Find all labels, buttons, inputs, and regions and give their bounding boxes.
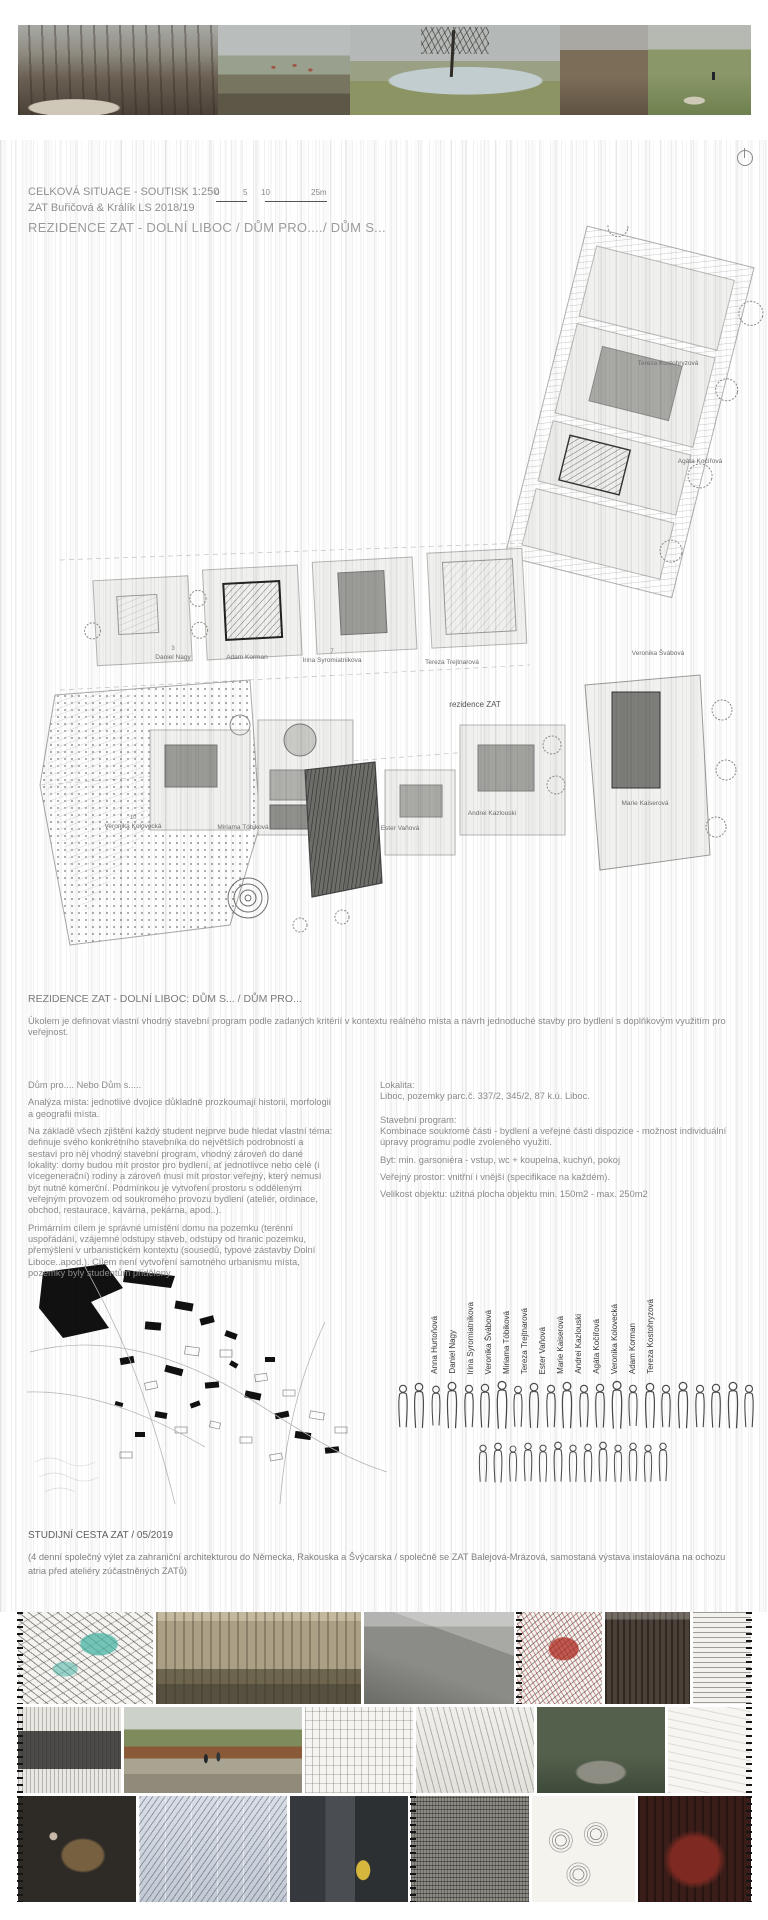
walking-person [712, 72, 715, 80]
project-title: REZIDENCE ZAT - DOLNÍ LIBOC / DŮM PRO...… [28, 220, 386, 235]
scale-bar-segment-1 [216, 201, 247, 202]
student-name-list: Anna Hurtoňová Daniel Nagy Irina Syromia… [430, 1262, 664, 1374]
scale-tick-10: 10 [261, 188, 270, 197]
collage-row-2 [18, 1707, 751, 1793]
student-name: Tereza Trejtnarová [520, 1308, 530, 1374]
assignment-intro: Úkolem je definovat vlastní vhodný stave… [28, 1016, 734, 1039]
assignment-title: REZIDENCE ZAT - DOLNÍ LIBOC: DŮM S... / … [28, 993, 302, 1005]
sketch-three-circles [532, 1796, 635, 1902]
student-name: Daniel Nagy [448, 1330, 458, 1374]
scale-tick-25m: 25m [311, 188, 327, 197]
sketch-horizontal-lines [693, 1612, 751, 1704]
sketch-white-minimal [668, 1707, 751, 1793]
plot-label: Ester Vaňová [381, 825, 420, 832]
photo-strip [18, 25, 751, 115]
people-row-2 [479, 1442, 666, 1482]
figure-ground-map [25, 1262, 390, 1507]
plot-label: Andrei Kazlouski [468, 810, 516, 817]
middle-parcel-band [81, 548, 526, 666]
student-name: Veronika Švábová [484, 1310, 494, 1375]
spiral-stair-feature [228, 878, 268, 918]
plot-label: Adam Korman [226, 654, 268, 661]
program-line: Kombinace soukromé části - bydlení a veř… [380, 1126, 746, 1149]
photo-concrete-building-group [156, 1612, 361, 1704]
collage-row-1 [18, 1612, 751, 1704]
student-name: Agáta Kočířová [592, 1319, 602, 1374]
sketch-red-scribble [517, 1612, 602, 1704]
plot-label: Veronika Kolovecká [104, 823, 161, 830]
photo-timber-facade [605, 1612, 690, 1704]
rezidence-zat-label: rezidence ZAT [449, 700, 501, 709]
lokalita-label: Lokalita: [380, 1080, 746, 1091]
photo-workshop-overhead [18, 1796, 136, 1902]
assignment-left-column: Dům pro.... Nebo Dům s..... Analýza míst… [28, 1080, 334, 1285]
sketch-interior-perspective [416, 1707, 534, 1793]
photo-river-group [537, 1707, 665, 1793]
program-label: Stavební program: [380, 1115, 746, 1126]
plot-label: Daniel Nagy [155, 654, 191, 661]
sketch-pavilion-lines [305, 1707, 413, 1793]
photo-pond-bare-tree [350, 25, 560, 115]
plot-number: 10 [130, 815, 137, 821]
sketch-dark-building [18, 1707, 121, 1793]
plot-label: Tereza Trejtnarová [425, 659, 479, 666]
upper-parcel-cluster [505, 225, 768, 602]
photo-trees-stone-wall [18, 25, 218, 115]
people-row-1 [399, 1381, 753, 1428]
program-line: Velikost objektu: užitná plocha objektu … [380, 1189, 746, 1200]
photo-muddy-field [560, 25, 648, 115]
photo-concrete-interior [364, 1612, 514, 1704]
program-line: Byt: min. garsoniéra - vstup, wc + koupe… [380, 1155, 746, 1166]
plot-label: Tereza Kostohryzová [638, 360, 699, 367]
photo-street-yellow-object [290, 1796, 408, 1902]
photo-sketch-collage [18, 1612, 751, 1902]
paragraph: Na základě všech zjištění každý student … [28, 1126, 334, 1217]
plot-label: Agáta Kočířová [678, 458, 723, 465]
presentation-board: CELKOVÁ SITUACE - SOUTISK 1:250 ZAT Buři… [0, 0, 768, 1920]
site-plan-drawing: Tereza Kostohryzová Agáta Kočířová 3 Dan… [0, 225, 768, 1005]
study-trip-text: (4 denní společný výlet za zahraniční ar… [28, 1550, 740, 1579]
photo-red-interior [638, 1796, 751, 1902]
paragraph: Primárním cílem je správné umístění domu… [28, 1223, 334, 1280]
scale-bar-segment-2 [265, 201, 327, 202]
assignment-right-column: Lokalita: Liboc, pozemky parc.č. 337/2, … [380, 1080, 746, 1207]
sketch-teal-architecture [18, 1612, 153, 1704]
sketch-dark-pages [411, 1796, 529, 1902]
plot-label: Marie Kaiserová [622, 800, 669, 807]
student-name: Irina Syromiatnikova [466, 1302, 476, 1374]
scale-tick-5: 5 [243, 188, 247, 197]
student-name: Marie Kaiserová [556, 1316, 566, 1374]
student-name: Tereza Kostohryzová [646, 1299, 656, 1374]
student-name: Miriama Tóbiková [502, 1311, 512, 1374]
student-name: Andrei Kazlouski [574, 1314, 584, 1374]
student-name: Adam Korman [628, 1323, 638, 1374]
student-name: Anna Hurtoňová [430, 1316, 440, 1374]
plot-label: Miriama Tóbiková [217, 824, 269, 831]
photo-village-view [218, 25, 350, 115]
people-sketch [395, 1372, 765, 1502]
photo-meadow-path-walker [648, 25, 751, 115]
photo-gravel-path-people [124, 1707, 302, 1793]
lokalita-text: Liboc, pozemky parc.č. 337/2, 345/2, 87 … [380, 1091, 746, 1102]
study-trip-title: STUDIJNÍ CESTA ZAT / 05/2019 [28, 1530, 173, 1541]
program-line: Veřejný prostor: vnitřní i vnější (speci… [380, 1172, 746, 1183]
student-name: Veronika Kolovecká [610, 1304, 620, 1374]
sketch-blue-pages [139, 1796, 287, 1902]
scale-bar: 0 5 10 25m [215, 188, 335, 208]
collage-row-3 [18, 1796, 751, 1902]
plot-label: Veronika Švábová [632, 648, 685, 657]
plot-label: Irina Syromiatnikova [303, 657, 362, 664]
scale-tick-0: 0 [215, 188, 219, 197]
student-name: Ester Vaňová [538, 1327, 548, 1374]
paragraph: Analýza místa: jednotlivé dvojice důklad… [28, 1097, 334, 1120]
paragraph: Dům pro.... Nebo Dům s..... [28, 1080, 334, 1091]
north-arrow-icon [737, 150, 753, 166]
